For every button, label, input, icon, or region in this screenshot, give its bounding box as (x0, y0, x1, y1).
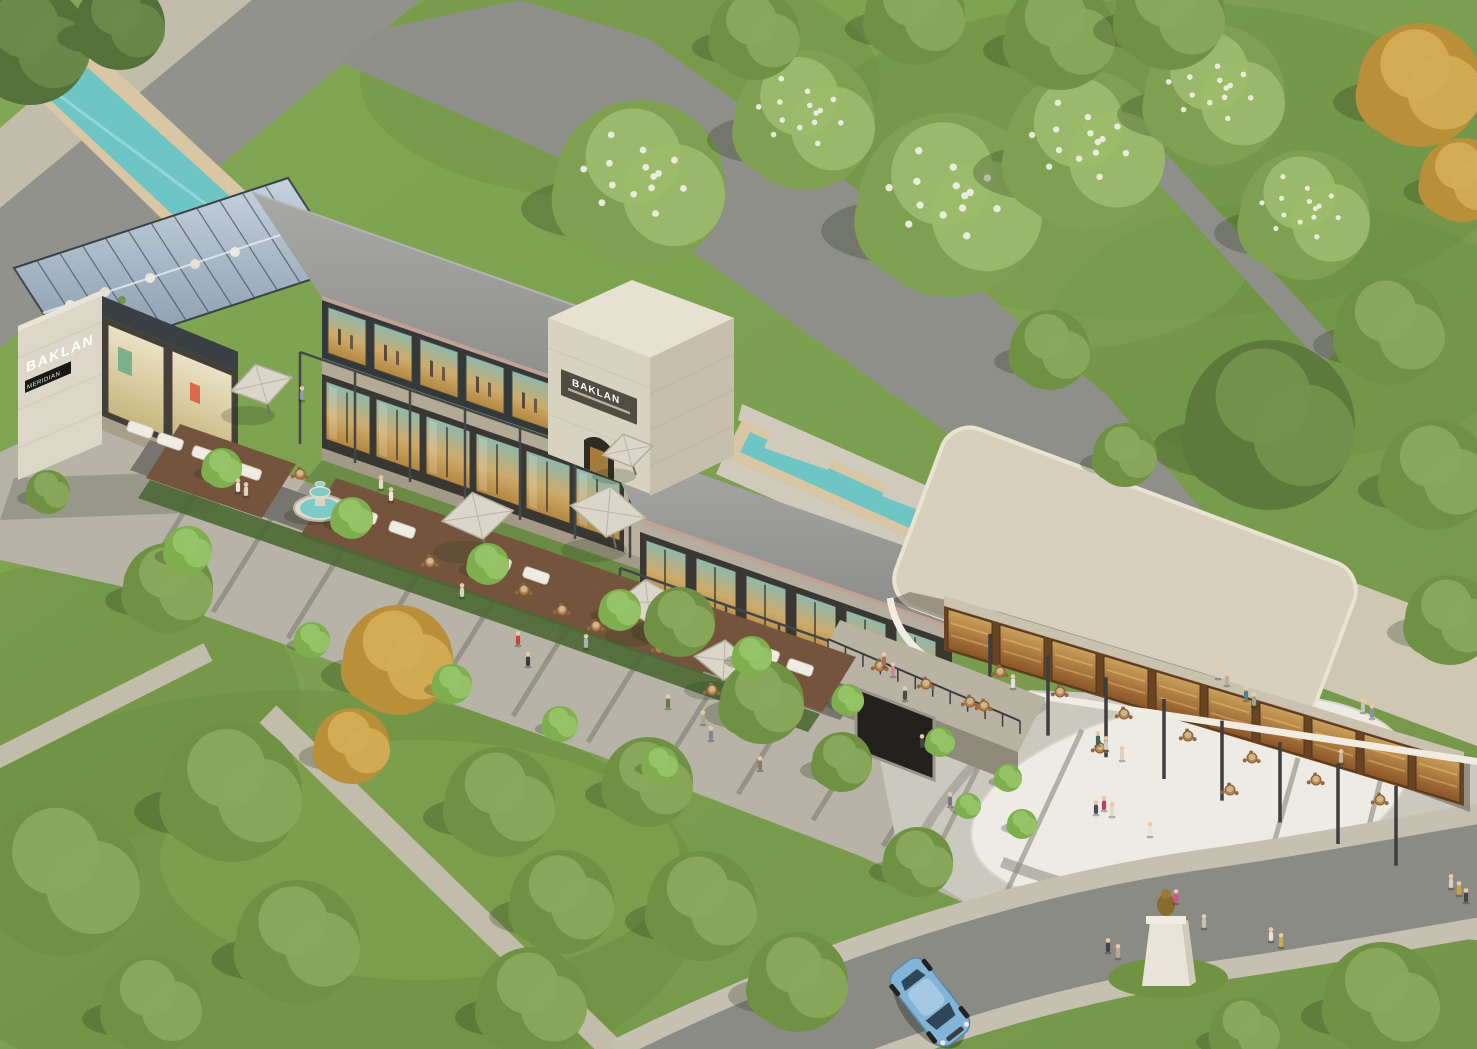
aerial-render: BAKLAN MERIDIAN (0, 0, 1477, 1049)
render-stage: BAKLAN MERIDIAN (0, 0, 1477, 1049)
entrance-tower: BAKLAN (548, 280, 734, 496)
